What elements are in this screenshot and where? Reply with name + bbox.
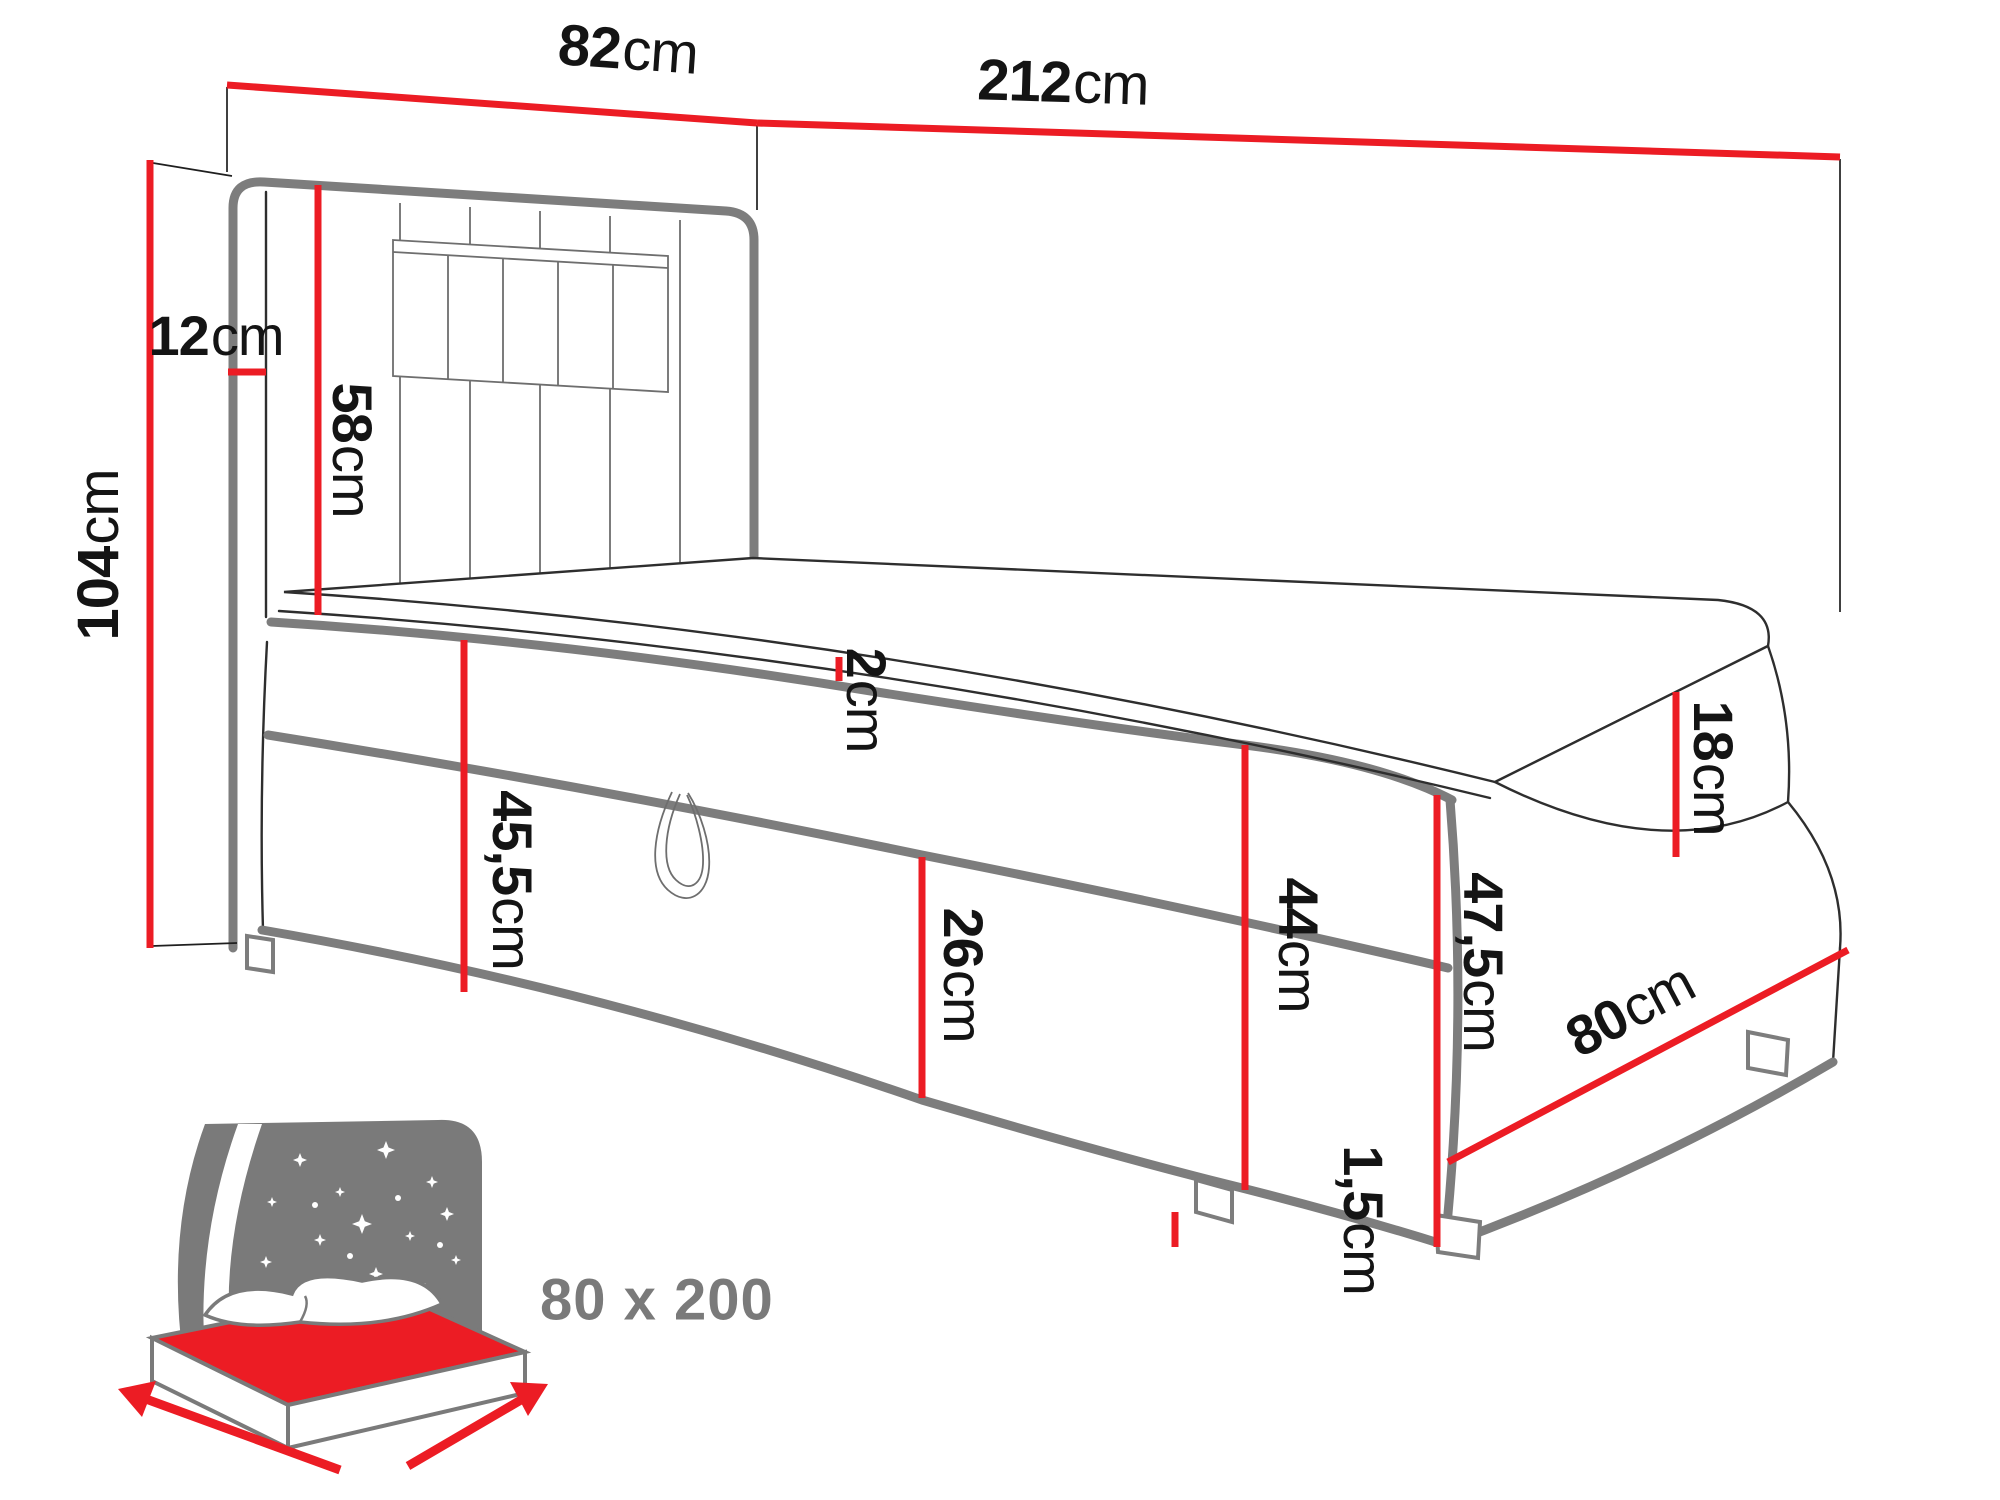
bed-dimension-diagram: 82cm 212cm 104cm 12cm 58cm 2cm 45,5cm 26… (0, 0, 2000, 1500)
dim-12cm-label: 12cm (149, 308, 284, 364)
dim-line-212 (757, 123, 1840, 157)
dim-18cm-label: 18cm (1685, 701, 1741, 836)
dim-47-5cm-label: 47,5cm (1455, 872, 1511, 1052)
dim-1-5cm-label: 1,5cm (1335, 1145, 1391, 1295)
bed-drawing (233, 182, 1841, 1258)
foot-bottom-edge (1445, 1062, 1833, 1245)
dim-58cm-label: 58cm (324, 383, 380, 518)
dim-44cm-label: 44cm (1270, 878, 1326, 1013)
dim-45-5cm-label: 45,5cm (484, 790, 540, 970)
size-badge: 80 x 200 (540, 1267, 774, 1334)
dim-line-82 (227, 85, 757, 123)
dim-82cm-label: 82cm (556, 16, 700, 84)
dim-104cm-label: 104cm (70, 469, 128, 640)
dim-212cm-label: 212cm (977, 51, 1150, 114)
bed-size-icon (118, 1120, 548, 1470)
dim-26cm-label: 26cm (935, 908, 991, 1043)
dim-2cm-label: 2cm (838, 648, 894, 753)
